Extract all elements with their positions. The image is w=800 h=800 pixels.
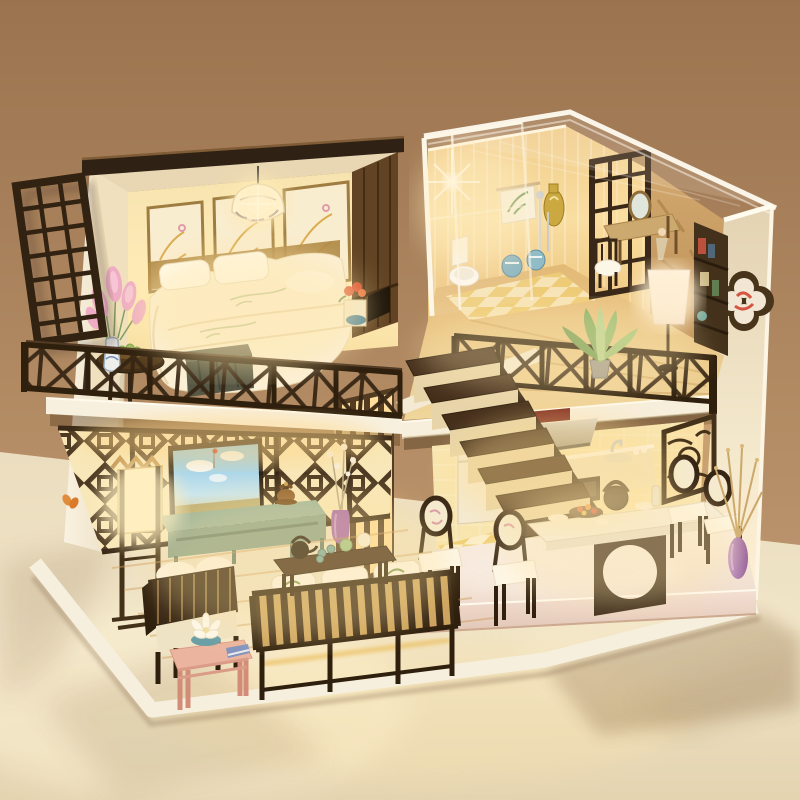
- glass-wall: [424, 122, 532, 316]
- pillow: [158, 259, 211, 291]
- dollhouse-photo: [0, 0, 800, 800]
- pillow: [212, 251, 269, 285]
- bolster: [286, 271, 334, 293]
- sink: [604, 453, 632, 463]
- black-teapot: [291, 541, 309, 559]
- green-cup: [340, 539, 352, 551]
- white-canister: [357, 533, 371, 547]
- bookshelf: [694, 222, 728, 356]
- photo-stage: [0, 0, 800, 800]
